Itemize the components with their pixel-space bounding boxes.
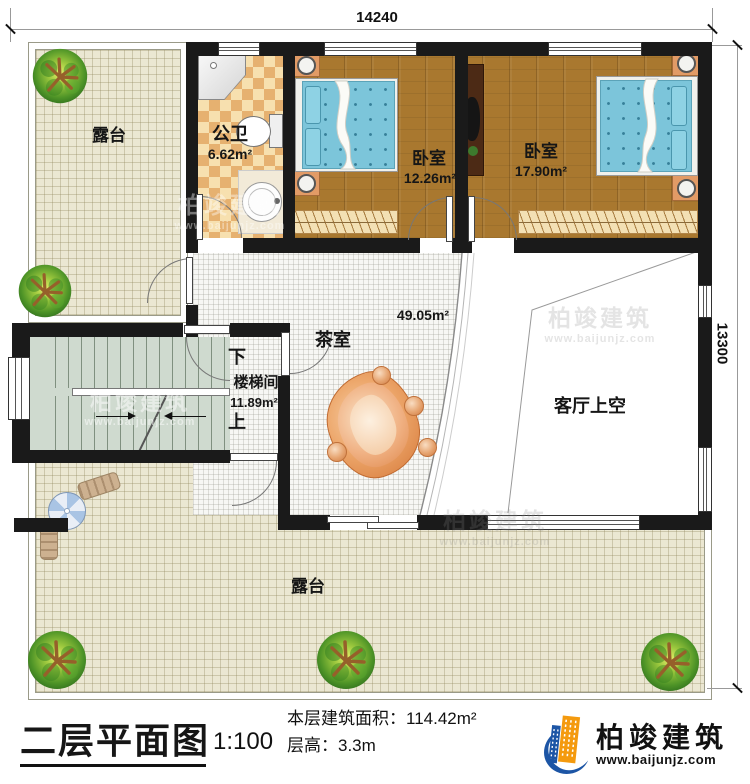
room-area-bathroom: 6.62m² bbox=[198, 147, 262, 162]
company-website: www.baijunjz.com bbox=[596, 752, 716, 767]
room-label-living-void: 客厅上空 bbox=[543, 397, 637, 417]
stool bbox=[418, 438, 437, 457]
company-logo-icon bbox=[538, 712, 592, 776]
dimension-height: 13300 bbox=[714, 322, 731, 366]
plant-icon bbox=[468, 146, 478, 156]
tree-icon bbox=[638, 630, 702, 694]
window bbox=[698, 447, 712, 512]
wall bbox=[14, 518, 68, 532]
window bbox=[8, 357, 30, 420]
room-label-terrace-top: 露台 bbox=[84, 127, 134, 146]
title-underline bbox=[20, 764, 206, 767]
room-label-bathroom: 公卫 bbox=[203, 125, 257, 145]
wall bbox=[12, 450, 230, 463]
lamp-icon bbox=[297, 56, 316, 75]
nightstand bbox=[291, 170, 320, 196]
wall bbox=[455, 56, 468, 238]
floor-area-row: 本层建筑面积：114.42m² bbox=[287, 705, 477, 732]
wall bbox=[278, 323, 290, 332]
wall bbox=[640, 515, 698, 530]
wall bbox=[12, 420, 30, 463]
floor-area-value: 114.42m² bbox=[406, 709, 477, 728]
toilet-tank bbox=[269, 114, 283, 148]
sink-basin bbox=[248, 188, 276, 216]
shower-drain-icon bbox=[210, 62, 217, 69]
dimension-extension bbox=[712, 8, 713, 42]
blanket-icon bbox=[295, 78, 398, 172]
door-leaf bbox=[281, 332, 290, 376]
blanket-icon bbox=[596, 76, 698, 176]
door-leaf bbox=[230, 453, 278, 461]
door-leaf bbox=[196, 194, 203, 240]
drawing-scale: 1:100 bbox=[213, 728, 273, 756]
room-label-bedroom-left: 卧室 bbox=[402, 150, 456, 169]
nightstand bbox=[672, 175, 699, 201]
room-label-tea-room: 茶室 bbox=[306, 331, 360, 351]
room-area-stairwell: 11.89m² bbox=[224, 396, 284, 410]
floor-area-label: 本层建筑面积： bbox=[287, 709, 406, 728]
room-label-terrace-bottom: 露台 bbox=[283, 578, 333, 597]
door-leaf bbox=[446, 196, 453, 242]
floor-info: 本层建筑面积：114.42m² 层高：3.3m bbox=[287, 705, 477, 759]
window bbox=[698, 285, 712, 318]
wall bbox=[698, 42, 712, 285]
room-area-tea-room: 49.05m² bbox=[390, 308, 456, 323]
stool bbox=[372, 366, 391, 385]
lamp-icon bbox=[297, 174, 316, 193]
stair-down-label: 下 bbox=[226, 348, 248, 368]
floor-height-row: 层高：3.3m bbox=[287, 732, 477, 759]
wall bbox=[283, 42, 295, 238]
dimension-line-top bbox=[10, 29, 715, 30]
stool bbox=[404, 396, 424, 416]
door-leaf bbox=[184, 325, 230, 334]
wall bbox=[186, 238, 198, 253]
tree-icon bbox=[25, 628, 89, 692]
wall bbox=[417, 515, 487, 530]
wall bbox=[698, 512, 712, 530]
wall bbox=[698, 318, 712, 447]
drawing-title: 二层平面图 bbox=[20, 712, 210, 764]
window bbox=[324, 42, 417, 56]
stool bbox=[327, 442, 347, 462]
floor-height-label: 层高： bbox=[287, 736, 338, 755]
wardrobe bbox=[286, 210, 398, 234]
tree-icon bbox=[30, 46, 90, 106]
dimension-line-right bbox=[737, 45, 738, 689]
tree-icon bbox=[16, 262, 74, 320]
tea-table-center bbox=[344, 390, 402, 459]
wall bbox=[12, 323, 30, 357]
room-area-bedroom-right: 17.90m² bbox=[507, 164, 575, 179]
umbrella-pole bbox=[64, 508, 70, 514]
window bbox=[548, 42, 642, 56]
room-area-bedroom-left: 12.26m² bbox=[396, 171, 464, 186]
wall bbox=[514, 238, 698, 253]
room-label-stairwell: 楼梯间 bbox=[224, 375, 288, 392]
door-leaf bbox=[186, 257, 193, 304]
wardrobe bbox=[518, 210, 698, 234]
floor-height-value: 3.3m bbox=[338, 736, 376, 755]
lamp-icon bbox=[677, 54, 696, 73]
sink-faucet-icon bbox=[274, 198, 280, 204]
dimension-extension bbox=[10, 8, 11, 42]
room-label-bedroom-right: 卧室 bbox=[514, 143, 568, 162]
stair-up-label: 上 bbox=[226, 413, 248, 433]
wall bbox=[417, 42, 548, 56]
sliding-door-panel bbox=[367, 522, 419, 529]
company-name: 柏竣建筑 bbox=[596, 716, 728, 756]
door-leaf bbox=[468, 196, 475, 242]
floor-plan-page: 14240 13300 露台 公卫 6.62m² 卧室 12.26m² 卧室 1… bbox=[0, 0, 750, 784]
wall bbox=[12, 323, 183, 337]
window bbox=[218, 42, 260, 56]
tree-icon bbox=[314, 628, 378, 692]
dimension-width: 14240 bbox=[347, 9, 407, 26]
wall bbox=[243, 238, 420, 253]
window bbox=[487, 515, 640, 530]
lamp-icon bbox=[677, 179, 696, 198]
